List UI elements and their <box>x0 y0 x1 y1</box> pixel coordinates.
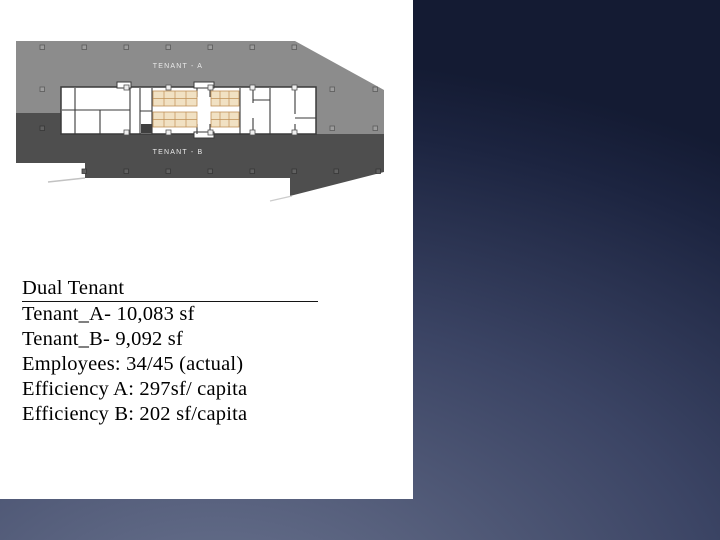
stat-efficiency-a: Efficiency A: 297sf/ capita <box>22 377 318 402</box>
tenant-b-label: TENANT - B <box>130 149 226 156</box>
floor-plan-svg <box>0 0 413 230</box>
service-block <box>141 124 152 133</box>
ramp-line-left <box>48 178 85 182</box>
stats-heading: Dual Tenant <box>22 276 318 302</box>
floor-plan: TENANT - A TENANT - B <box>0 0 413 230</box>
presentation-slide: TENANT - A TENANT - B Dual Tenant Tenant… <box>0 0 720 540</box>
tenant-a-label: TENANT - A <box>130 63 226 70</box>
content-panel: TENANT - A TENANT - B Dual Tenant Tenant… <box>0 0 413 499</box>
stat-efficiency-b: Efficiency B: 202 sf/capita <box>22 402 318 427</box>
stat-employees: Employees: 34/45 (actual) <box>22 352 318 377</box>
ramp-line-right <box>270 196 292 201</box>
tenant-stats: Dual Tenant Tenant_A- 10,083 sf Tenant_B… <box>22 276 318 427</box>
stat-tenant-b-area: Tenant_B- 9,092 sf <box>22 327 318 352</box>
stat-tenant-a-area: Tenant_A- 10,083 sf <box>22 302 318 327</box>
